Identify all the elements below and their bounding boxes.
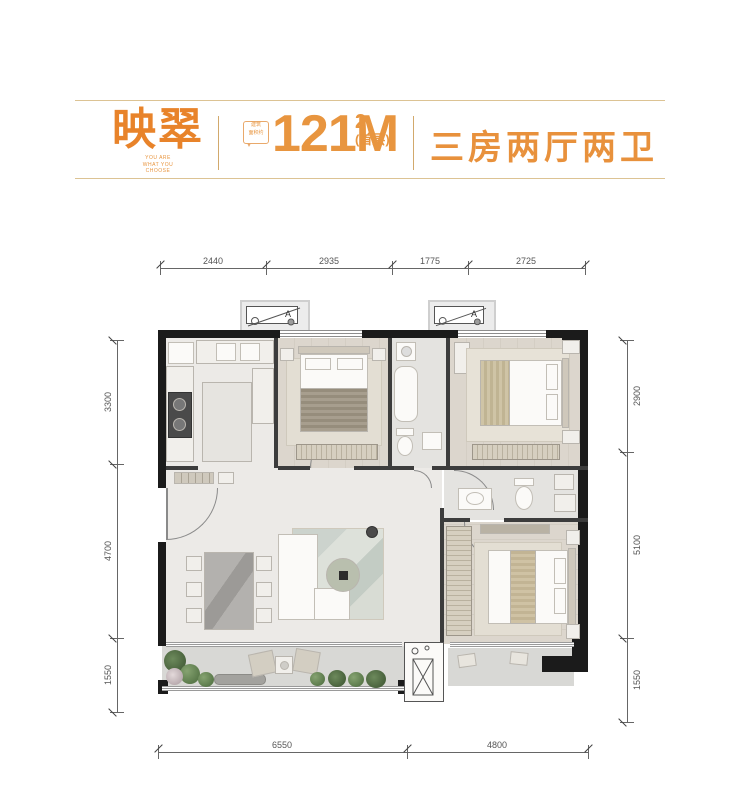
equipment-platform [404, 642, 444, 702]
terrace-chair [509, 651, 528, 666]
bedroom2-wardrobe [472, 444, 560, 460]
wall-top-a [158, 330, 280, 338]
brand-logo: 映翠 YOU ARE WHAT YOU CHOOSE [106, 106, 210, 175]
kitchen-sink [240, 343, 260, 361]
dim-tick [620, 452, 634, 453]
dim-label: 1550 [103, 663, 113, 687]
toilet-tank [396, 428, 414, 436]
dining-chair [256, 556, 272, 571]
bath-cabinet [554, 474, 574, 490]
area-floor-note: (首层) [355, 132, 411, 148]
floor-lamp-icon [366, 526, 378, 538]
dining-table [204, 552, 254, 630]
wall-bath1-bedroom2 [446, 338, 450, 468]
nightstand [566, 624, 580, 639]
dim-bottom-line [158, 752, 588, 753]
burner-icon [173, 398, 186, 411]
dim-tick [392, 261, 393, 275]
tv-bench [480, 524, 550, 534]
toilet [397, 436, 413, 456]
ac-platform-frame: A [434, 306, 484, 324]
floor-plan [158, 330, 588, 702]
entry-door-leaf [166, 488, 168, 540]
balcony-railing [162, 686, 406, 691]
dim-label: 1550 [632, 668, 642, 692]
dim-tick [110, 340, 124, 341]
plant [198, 672, 214, 687]
wall-bath2-bottom-b [504, 518, 588, 522]
dining-chair [256, 582, 272, 597]
plant [328, 670, 346, 687]
wall-kitchen-bottom [166, 466, 198, 470]
dim-label: 3300 [103, 390, 113, 414]
dim-tick [266, 261, 267, 275]
area-superscript: 2 [355, 112, 411, 132]
header-divider-1 [218, 116, 219, 170]
window-bedroom1 [280, 330, 362, 338]
dim-tick [110, 712, 124, 713]
bathtub [394, 366, 418, 422]
coffee-table-tray-icon [339, 571, 348, 580]
dim-tick [585, 261, 586, 275]
sofa-chaise [314, 588, 350, 620]
area-badge: 建筑 面积约 [243, 121, 269, 144]
bathroom-sink [422, 432, 442, 450]
flower-plant [166, 668, 183, 685]
pillow [554, 588, 566, 614]
ac-platform: A [240, 300, 310, 332]
dim-tick [468, 261, 469, 275]
wall-right-b [578, 470, 588, 646]
wall-bath1-bottom-a [392, 466, 414, 470]
washer-drum-icon [401, 346, 412, 357]
dining-chair [186, 556, 202, 571]
brand-tagline: YOU ARE WHAT YOU CHOOSE [106, 155, 210, 175]
bedroom1-blanket [300, 388, 368, 432]
ac-label: A [285, 309, 291, 319]
fridge [168, 342, 194, 364]
dim-tick [588, 745, 589, 759]
pillow [546, 394, 558, 420]
plant [310, 672, 325, 686]
dim-tick [407, 745, 408, 759]
dim-tick [620, 722, 634, 723]
wall-bedroom1-bottom-b [354, 466, 392, 470]
lounge-chair [292, 648, 321, 675]
pillow [337, 358, 363, 370]
layout-label: 三房两厅两卫 [430, 120, 658, 169]
wall-bedroom2-bottom [496, 466, 588, 470]
nightstand [562, 430, 580, 444]
bedroom1-bench [296, 444, 378, 460]
dining-chair [186, 608, 202, 623]
dim-label: 2935 [317, 256, 341, 266]
kitchen-sink [216, 343, 236, 361]
ac-platform: A [428, 300, 496, 332]
pillow [554, 558, 566, 584]
ac-diagonal-icon [435, 307, 487, 327]
bedroom2-headboard [562, 358, 569, 428]
wall-living-master [440, 508, 444, 646]
area-side: 2 (首层) [355, 112, 411, 148]
nightstand [280, 348, 294, 361]
dim-tick [110, 464, 124, 465]
dim-label: 4700 [103, 539, 113, 563]
wall-kitchen-bedroom1 [274, 338, 278, 468]
header-divider-2 [413, 116, 414, 170]
window-bedroom2 [458, 330, 546, 338]
ac-label: A [471, 309, 477, 319]
wall-left-a [158, 330, 166, 488]
wall-bedroom1-bottom-a [278, 466, 310, 470]
wall-bedroom1-bath1 [388, 338, 392, 468]
nightstand [566, 530, 580, 545]
master-bed-runner [510, 550, 536, 624]
master-terrace-door [450, 642, 574, 647]
plant [180, 664, 200, 684]
nightstand [562, 340, 580, 354]
table-decor-icon [280, 661, 289, 670]
burner-icon [173, 418, 186, 431]
entry-cabinet [218, 472, 234, 484]
kitchen-island [202, 382, 252, 462]
master-headboard [568, 548, 576, 626]
header-rule-bottom [75, 178, 665, 179]
dim-label: 2900 [632, 384, 642, 408]
dim-tick [160, 261, 161, 275]
dining-chair [186, 582, 202, 597]
dim-label: 4800 [485, 740, 509, 750]
shower-tray [554, 494, 576, 512]
brand-name: 映翠 [106, 106, 210, 154]
ac-diagonal-icon [247, 307, 301, 327]
dim-label: 2725 [514, 256, 538, 266]
sofa [278, 534, 318, 620]
plant [348, 672, 364, 687]
master-wardrobe [446, 526, 472, 636]
dim-tick [110, 638, 124, 639]
terrace-chair [457, 653, 477, 668]
ladder-icon [405, 643, 443, 701]
bedroom2-blanket [480, 360, 510, 426]
nightstand [372, 348, 386, 361]
dim-top-line [160, 268, 585, 269]
dim-label: 1775 [418, 256, 442, 266]
header-rule-top [75, 100, 665, 101]
wall-left-b [158, 542, 166, 646]
toilet-tank [514, 478, 534, 486]
living-balcony-door [166, 642, 402, 647]
shoe-cabinet [174, 472, 214, 484]
plant [366, 670, 386, 688]
dim-label: 2440 [201, 256, 225, 266]
wall-top-b [362, 330, 458, 338]
dim-tick [620, 340, 634, 341]
toilet [515, 486, 533, 510]
dining-chair [256, 608, 272, 623]
dim-label: 6550 [270, 740, 294, 750]
bedroom1-headboard [298, 346, 370, 354]
wall-hall-top [432, 466, 496, 470]
pillow [546, 364, 558, 390]
dim-label: 5100 [632, 533, 642, 557]
dim-right-line [627, 340, 628, 722]
dim-tick [620, 638, 634, 639]
sink-basin-icon [466, 492, 484, 505]
dim-tick [158, 745, 159, 759]
ac-platform-frame: A [246, 306, 298, 324]
kitchen-counter-right [252, 368, 274, 424]
wall-right-a [580, 330, 588, 470]
pillow [305, 358, 331, 370]
dim-left-line [117, 340, 118, 712]
